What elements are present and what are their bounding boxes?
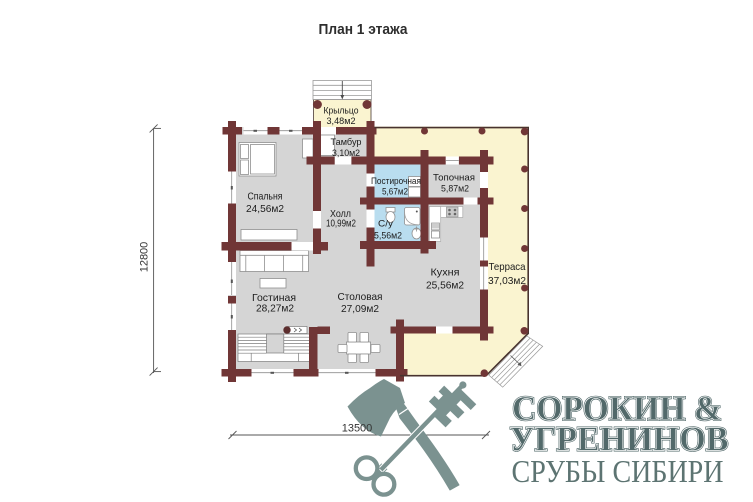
svg-text:5,87м2: 5,87м2 [441,184,469,195]
svg-text:СРУБЫ СИБИРИ: СРУБЫ СИБИРИ [512,453,724,489]
svg-text:Постирочная: Постирочная [371,176,421,187]
svg-text:Крыльцо: Крыльцо [324,106,359,117]
svg-text:Топочная: Топочная [433,173,475,184]
svg-text:10,99м2: 10,99м2 [326,218,356,230]
svg-text:Столовая: Столовая [338,291,383,303]
svg-text:13500: 13500 [342,423,373,435]
svg-text:3,48м2: 3,48м2 [327,116,356,127]
svg-text:12800: 12800 [139,242,151,273]
svg-text:Кухня: Кухня [431,267,460,279]
svg-text:37,03м2: 37,03м2 [488,275,526,287]
svg-text:Тамбур: Тамбур [331,137,362,148]
svg-text:27,09м2: 27,09м2 [341,303,379,315]
svg-text:5,67м2: 5,67м2 [382,187,408,198]
svg-text:24,56м2: 24,56м2 [246,203,284,215]
svg-text:С/у: С/у [378,219,393,230]
svg-text:28,27м2: 28,27м2 [256,303,294,315]
svg-text:Спальня: Спальня [248,191,283,203]
svg-text:25,56м2: 25,56м2 [426,280,464,292]
svg-text:5,56м2: 5,56м2 [374,231,402,242]
svg-text:3,10м2: 3,10м2 [332,148,360,159]
svg-text:План 1 этажа: План 1 этажа [319,21,409,38]
svg-text:Терраса: Терраса [489,261,526,273]
